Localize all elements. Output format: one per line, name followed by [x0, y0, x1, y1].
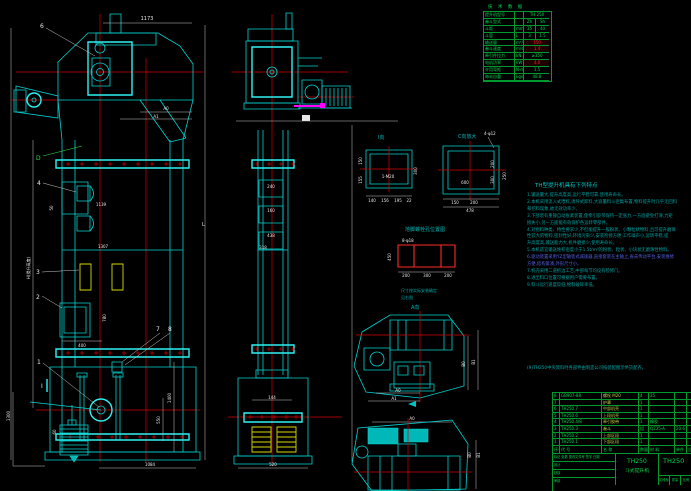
- dim-i22: 22: [406, 198, 412, 203]
- bom-code: TH250.1: [560, 439, 602, 446]
- bom-total: [687, 400, 691, 407]
- dim-60: 60: [52, 429, 57, 435]
- bom-material: 35: [649, 393, 675, 400]
- bom-qty: 1: [639, 419, 649, 426]
- bom-header-cell: 代 号: [560, 446, 602, 454]
- scale-cell: 比例: [681, 476, 691, 485]
- balloon-3: 3: [36, 269, 40, 276]
- table-row: 提升机型号 TH 250: [484, 12, 551, 19]
- balloon-7: 7: [156, 326, 160, 333]
- dim-i300: 300: [413, 167, 418, 175]
- drive-arrangement-view-1: A0 A1 B0 B1: [354, 311, 478, 407]
- dim-i155: 155: [358, 176, 363, 184]
- bom-row: 1TH250.1下部区段1: [553, 439, 691, 446]
- bom-no: 7: [553, 400, 560, 407]
- dim-g300: 300: [423, 273, 431, 278]
- dim-160: 160: [267, 208, 275, 213]
- dim-i150: 150: [358, 157, 363, 165]
- tech-value: Zh: [524, 19, 536, 26]
- bom-total: [687, 426, 691, 433]
- anchor-bolt-layout: 8-φ18 450 200 300 200 尺寸按实际安装确定 见右图 A向: [387, 238, 455, 311]
- balloon-D: D: [36, 155, 41, 162]
- feature-line: 2.本机采用流入式喂料,诱导式卸料,大容量料斗密集布置,物料提升时几乎无回料: [527, 200, 691, 207]
- dim-318: 318: [259, 245, 267, 250]
- bom-row: 7护罩1: [553, 400, 691, 407]
- front-elevation-view: 1173 A0 A1 L H(提升高度) 1139 1307 50 400 78…: [6, 14, 205, 468]
- tech-unit: kg/m: [515, 74, 524, 81]
- bom-weight: [675, 433, 687, 440]
- tail-inlet-chute: [16, 86, 58, 118]
- model-number: TH250: [616, 458, 658, 465]
- dim-i156: 156: [381, 198, 389, 203]
- tech-unit: mm: [515, 26, 524, 33]
- bucket-yellow-side: [252, 427, 296, 452]
- bom-total: [687, 393, 691, 400]
- dim-a1a: A1: [391, 396, 397, 401]
- title-block-number: TH250 阶段标记 质量 比例: [659, 454, 691, 485]
- bom-no: 1: [553, 439, 560, 446]
- bom-row: 3TH250.3畚斗组Q235-A20.6: [553, 426, 691, 433]
- tech-value: Sh: [536, 19, 549, 26]
- bom-code: [560, 400, 602, 407]
- table-row: 畚斗型式 Zh Sh: [484, 19, 551, 26]
- bom-header-cell: 总计: [687, 446, 691, 454]
- bom-code: TH250.6: [560, 413, 602, 420]
- table-row: 畚斗速度 m/s 1.4: [484, 46, 551, 53]
- dim-c300: 300: [490, 176, 495, 184]
- tech-value: 1.5: [524, 67, 549, 74]
- bom-row: 2TH250.2上部区段1: [553, 433, 691, 440]
- bom-header-cell: 名 称: [602, 446, 639, 454]
- bom-no: 6: [553, 406, 560, 413]
- bom-header-cell: 材 料: [649, 446, 675, 454]
- tech-label: 电机功率: [484, 60, 515, 67]
- dim-a0b: A0: [409, 416, 415, 421]
- bom-row: 5TH250.6上段机壳1: [553, 413, 691, 420]
- bom-qty: 1: [639, 400, 649, 407]
- dim-a0: A0: [163, 106, 169, 111]
- bom-total: [687, 413, 691, 420]
- tech-value: ≥350: [524, 53, 549, 60]
- dim-400: 400: [78, 343, 86, 348]
- dim-a0a: A0: [395, 388, 401, 393]
- tech-label: 提升机型号: [484, 12, 515, 19]
- dim-550: 550: [156, 416, 161, 424]
- bom-material: Q235-A: [649, 426, 675, 433]
- dim-height: H(提升高度): [25, 257, 31, 280]
- bom-qty: 1: [639, 413, 649, 420]
- bom-code: TH250.3: [560, 426, 602, 433]
- dim-c200b: 200: [470, 200, 478, 205]
- checker-row: 校核: [553, 470, 615, 478]
- dim-1084: 1084: [145, 462, 156, 467]
- tech-value: 3: [524, 33, 536, 40]
- feature-line: 8.进出料口位置可根据用户需要布置。: [527, 276, 691, 283]
- feature-line: 7.机壳采用二道折边工艺,中部每节均设有检修门。: [527, 269, 691, 276]
- balloon-8: 8: [168, 326, 172, 333]
- feature-line: 3.下部装有重锤自动张紧装置,使牵引胶带保持一定张力,一方面避免打滑,力矩: [527, 214, 691, 221]
- bom-code: GB907-88: [560, 393, 602, 400]
- bom-total: [687, 439, 691, 446]
- bom-qty: 1: [639, 406, 649, 413]
- tech-label: 斗距: [484, 26, 515, 33]
- feature-line: 1.输送量大,提升高度高,运行平稳可靠,使用寿命长。: [527, 193, 691, 200]
- bom-row: 6TH250.7中部机壳1: [553, 406, 691, 413]
- grid-note-1: 尺寸按实际安装确定: [401, 287, 437, 293]
- dim-c250: 250: [502, 172, 507, 180]
- approver-row: 审核: [553, 478, 615, 485]
- tech-label: 畚斗速度: [484, 46, 515, 53]
- feature-line: 方便,结构紧凑,外形尺寸小。: [527, 262, 691, 269]
- bom-row: 4TH250.4/8牵引胶带1橡胶: [553, 419, 691, 426]
- flange-detail-view-I: I向 150 155 300 1-M20 140 156 195 22: [358, 134, 418, 203]
- bom-no: 4: [553, 419, 560, 426]
- dim-240: 240: [267, 184, 275, 189]
- bom-title-block: 8GB907-88螺栓 M20435 7护罩1 6TH250.7中部机壳1 5T…: [552, 392, 691, 491]
- title-block: 标记 处数 更改文件号 签字 日期 设计 校核 审核 TH250 斗式提升机 T…: [553, 454, 691, 485]
- dim-c478: 478: [466, 208, 474, 213]
- tech-label: 每米自重: [484, 74, 515, 81]
- bom-no: 2: [553, 433, 560, 440]
- tech-label: 输送量: [484, 40, 515, 47]
- bucket-profile: [77, 216, 90, 231]
- tech-value: 35: [524, 26, 536, 33]
- cad-drawing-canvas: 1173 A0 A1 L H(提升高度) 1139 1307 50 400 78…: [0, 0, 691, 491]
- bucket-yellow: [112, 264, 123, 290]
- bom-name: 畚斗: [602, 426, 639, 433]
- tech-value: 40: [536, 26, 549, 33]
- tech-unit: kW: [515, 60, 524, 67]
- bom-name: 牵引胶带: [602, 419, 639, 426]
- footnote-line: (9)TH250中央装料时各部件由制造公司按装配图示供货配齐。: [527, 365, 691, 371]
- tech-label: 畚斗型式: [484, 19, 515, 26]
- view-label-I: I向: [378, 134, 384, 141]
- view-label-A: A向: [411, 304, 419, 311]
- dim-1139: 1139: [96, 202, 107, 207]
- tech-unit: [515, 12, 524, 19]
- dim-b1a: B1: [471, 359, 476, 365]
- dim-a1: A1: [153, 114, 159, 119]
- dim-b1b: B1: [476, 452, 481, 458]
- vent-pipe: [110, 14, 121, 33]
- designer-row: 设计: [553, 462, 615, 470]
- bom-material: [649, 433, 675, 440]
- bom-name: 上部区段: [602, 433, 639, 440]
- tech-value: 48.8: [524, 74, 549, 81]
- tech-unit: kN: [515, 53, 524, 60]
- bom-total: [687, 433, 691, 440]
- bom-weight: [675, 419, 687, 426]
- stage-cell: 阶段标记: [659, 476, 670, 485]
- tech-unit: N·m: [515, 67, 524, 74]
- view-direction-arrow: [408, 401, 416, 407]
- bom-no: 8: [553, 393, 560, 400]
- bom-header-cell: 单件: [675, 446, 687, 454]
- dim-i195: 195: [394, 198, 402, 203]
- bom-no: 5: [553, 413, 560, 420]
- tech-data-table: 提升机型号 TH 250 畚斗型式 Zh Sh 斗距 mm 35 40 斗容 L…: [483, 11, 552, 82]
- feature-line: 和挖料现象,故无效功率少。: [527, 207, 691, 214]
- base-frame: [45, 452, 200, 460]
- dim-L: L: [202, 222, 205, 228]
- bom-material: [649, 413, 675, 420]
- bom-header-cell: 序号: [553, 446, 560, 454]
- tech-value: 1.5: [536, 33, 549, 40]
- tech-value: 150: [524, 40, 549, 47]
- dim-1400: 1400: [167, 392, 172, 403]
- table-row: 斗容 L 3 1.5: [484, 33, 551, 40]
- bom-weight: [675, 393, 687, 400]
- tech-unit: [515, 19, 524, 26]
- title-block-signatures: 标记 处数 更改文件号 签字 日期 设计 校核 审核: [553, 454, 616, 485]
- title-block-name: TH250 斗式提升机: [616, 454, 659, 485]
- feature-notes-title: TH型提升机具有下列特点: [535, 181, 691, 189]
- balloon-2: 2: [36, 294, 40, 301]
- dim-1300: 1300: [6, 410, 11, 421]
- balloon-6: 6: [40, 23, 44, 30]
- dim-780: 780: [102, 314, 107, 322]
- bom-qty: 1: [639, 433, 649, 440]
- bom-material: [649, 406, 675, 413]
- bom-code: TH250.7: [560, 406, 602, 413]
- dim-c600: 600: [461, 180, 469, 185]
- bom-material: [649, 400, 675, 407]
- table-row: 牵引件拉力 kN ≥350: [484, 53, 551, 60]
- drive-arrangement-view-2: A0 B0 B1: [352, 416, 481, 491]
- tech-value: TH 250: [524, 12, 549, 19]
- balloon-1: 1: [37, 359, 41, 366]
- bom-qty: 组: [639, 426, 649, 433]
- balloon-4: 4: [37, 180, 41, 187]
- drawing-number: TH250: [659, 454, 691, 475]
- tech-unit: m³/h: [515, 40, 524, 47]
- side-elevation-view: 240 160 438 318 144 520: [228, 13, 398, 468]
- dim-b0a: B0: [461, 361, 466, 367]
- dim-g450: 450: [387, 253, 392, 261]
- feature-line: 损失小,另一方面能有效保护各运转零部件。: [527, 221, 691, 228]
- dim-c150: 150: [451, 200, 459, 205]
- table-row: 许用弯矩 N·m 1.5: [484, 67, 551, 74]
- bom-weight: [675, 406, 687, 413]
- tech-label: 许用弯矩: [484, 67, 515, 74]
- table-row: 斗距 mm 35 40: [484, 26, 551, 33]
- mass-cell: 质量: [670, 476, 681, 485]
- bom-weight: [675, 400, 687, 407]
- dim-438: 438: [267, 233, 275, 238]
- bom-no: 3: [553, 426, 560, 433]
- bolt-callout-c: 4-φ12: [484, 131, 496, 136]
- dim-i140: 140: [368, 198, 376, 203]
- bom-qty: 1: [639, 439, 649, 446]
- dim-b0b: B0: [467, 452, 472, 458]
- bucket-yellow: [80, 264, 91, 290]
- bom-name: 下部区段: [602, 439, 639, 446]
- dim-g200b: 200: [444, 273, 452, 278]
- bom-weight: [675, 439, 687, 446]
- bom-code: TH250.4/8: [560, 419, 602, 426]
- tech-label: 牵引件拉力: [484, 53, 515, 60]
- bom-name: 上段机壳: [602, 413, 639, 420]
- dim-144: 144: [268, 395, 276, 400]
- tech-value: 1.4: [524, 46, 549, 53]
- dim-c200: 200: [490, 160, 495, 168]
- table-row: 电机功率 kW 4.0: [484, 60, 551, 67]
- tech-label: 斗容: [484, 33, 515, 40]
- bom-header-cell: 数量: [639, 446, 649, 454]
- detail-caption: 地脚螺栓孔位置图: [405, 226, 445, 233]
- dim-50: 50: [49, 205, 54, 211]
- tech-value: 4.0: [524, 60, 549, 67]
- tech-table-title: 技 术 数 据: [488, 4, 524, 10]
- dim-520: 520: [269, 462, 277, 467]
- dim-1173: 1173: [141, 16, 154, 22]
- product-name: 斗式提升机: [616, 467, 658, 474]
- bom-weight: 20.6: [675, 426, 687, 433]
- table-row: 每米自重 kg/m 48.8: [484, 74, 551, 81]
- feature-notes: TH型提升机具有下列特点 1.输送量大,提升高度高,运行平稳可靠,使用寿命长。 …: [527, 181, 691, 363]
- tech-unit: m/s: [515, 46, 524, 53]
- flange-detail-view-C: C向放大 4-φ12 600 200 300 250 150 200 478: [438, 131, 507, 213]
- feature-line: 9.料斗运行速度较低,物料破碎率低。: [527, 283, 691, 290]
- signature-row: 标记 处数 更改文件号 签字 日期: [553, 454, 615, 462]
- table-row: 输送量 m³/h 150: [484, 40, 551, 47]
- tech-unit: L: [515, 33, 524, 40]
- view-label-C: C向放大: [458, 133, 477, 140]
- bom-total: [687, 419, 691, 426]
- dim-1307: 1307: [98, 244, 109, 249]
- bom-material: 橡胶: [649, 419, 675, 426]
- bom-weight: [675, 413, 687, 420]
- bom-row: 8GB907-88螺栓 M20435: [553, 393, 691, 400]
- bom-name: 螺栓 M20: [602, 393, 639, 400]
- drum-side: [368, 456, 460, 490]
- dim-g200a: 200: [402, 273, 410, 278]
- bolt-callout-grid: 8-φ18: [402, 238, 414, 243]
- grid-note-2: 见右图: [401, 294, 413, 300]
- bom-code: TH250.2: [560, 433, 602, 440]
- bom-qty: 4: [639, 393, 649, 400]
- bolt-callout-i: 1-M20: [382, 174, 395, 179]
- bom-name: 中部机壳: [602, 406, 639, 413]
- bom-total: [687, 406, 691, 413]
- bom-name: 护罩: [602, 400, 639, 407]
- bom-material: [649, 439, 675, 446]
- bom-header-row: 序号代 号名 称数量材 料单件总计: [553, 446, 691, 454]
- section-mark-I: I: [41, 383, 43, 390]
